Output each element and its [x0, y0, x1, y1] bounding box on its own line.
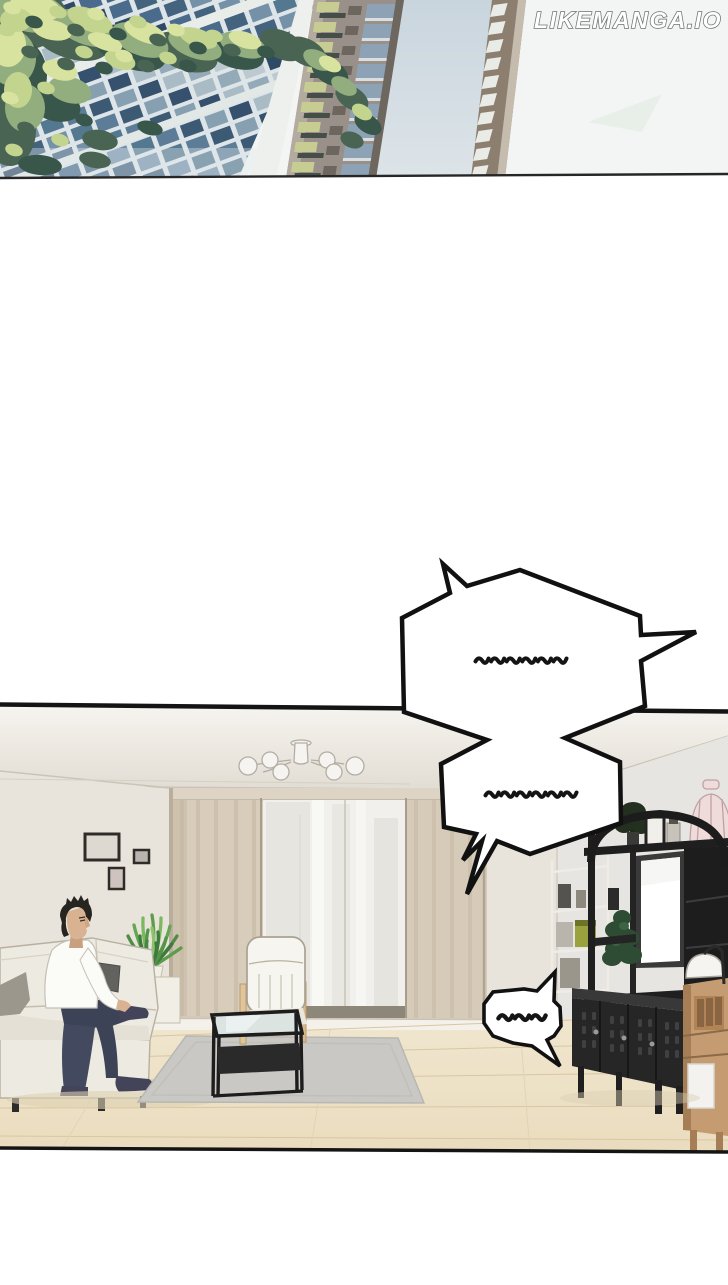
svg-text:LIKEMANGA.IO: LIKEMANGA.IO	[534, 7, 722, 33]
